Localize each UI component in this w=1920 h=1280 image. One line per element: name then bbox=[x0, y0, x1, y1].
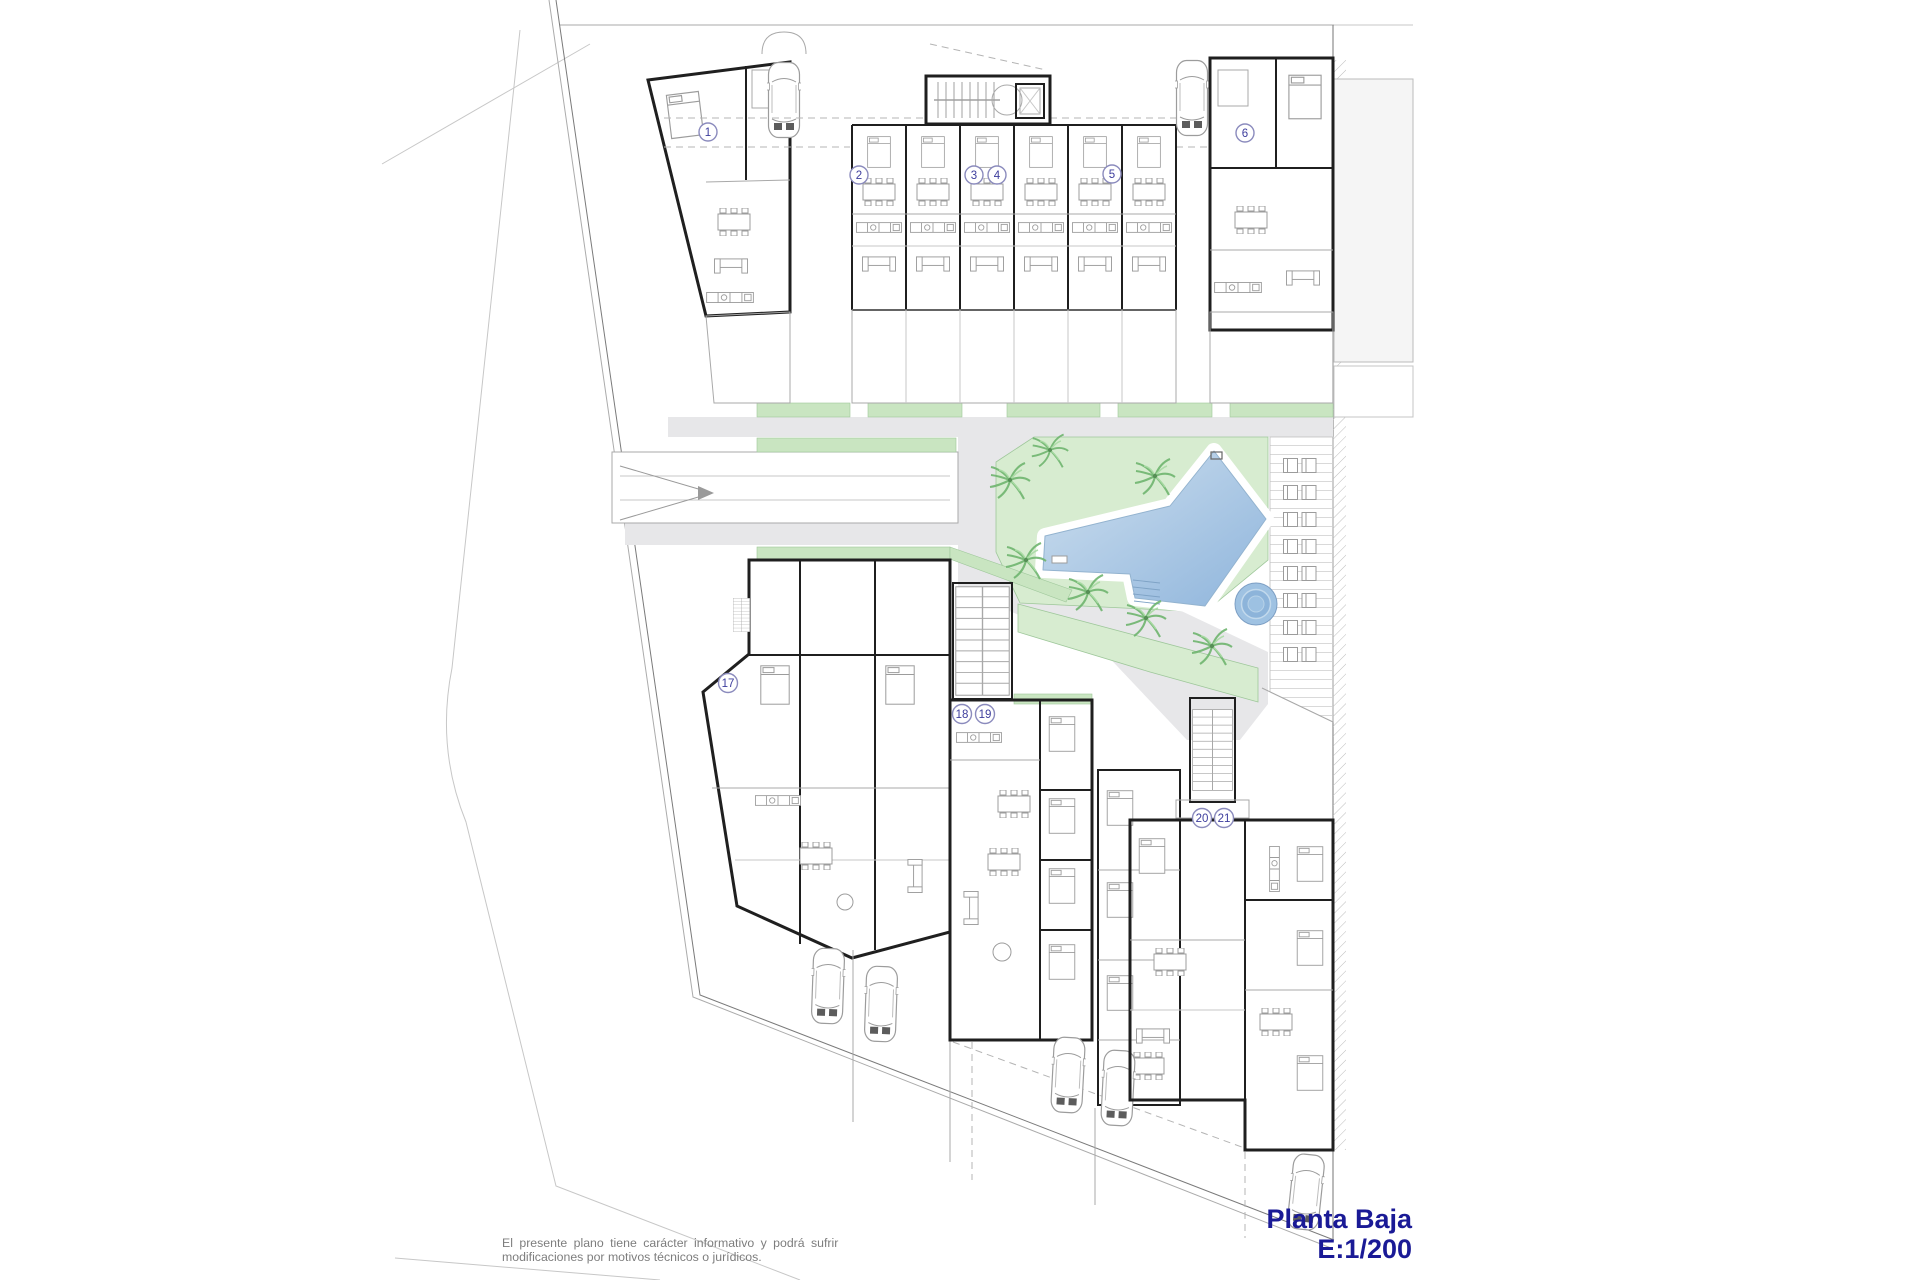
staircase-icon bbox=[934, 82, 1000, 118]
dining-table-icon bbox=[1154, 948, 1186, 976]
sofa-icon bbox=[964, 891, 978, 924]
unit-label-19: 19 bbox=[976, 705, 995, 724]
kitchen-icon bbox=[1270, 846, 1280, 891]
row-units bbox=[852, 125, 1176, 403]
unit-label-6: 6 bbox=[1236, 124, 1254, 142]
bed-icon bbox=[666, 91, 703, 138]
dining-table-icon bbox=[998, 790, 1030, 818]
bed-icon bbox=[1289, 75, 1321, 119]
terrace bbox=[706, 312, 790, 403]
kitchen-icon bbox=[956, 733, 1001, 743]
staircase-icon bbox=[733, 598, 750, 632]
neighbor-parcel bbox=[1334, 25, 1413, 417]
dining-table-icon bbox=[800, 842, 832, 870]
bed-icon bbox=[761, 666, 789, 704]
garden-bench-icon bbox=[1052, 556, 1067, 563]
car-icon bbox=[766, 63, 802, 138]
svg-text:20: 20 bbox=[1196, 813, 1209, 825]
staircase-icon bbox=[1193, 710, 1233, 791]
unit-label-3: 3 bbox=[965, 166, 983, 184]
top-units-block bbox=[648, 32, 1333, 403]
car-icon bbox=[809, 948, 848, 1024]
bed-icon bbox=[1049, 869, 1075, 904]
car-icon bbox=[1098, 1050, 1138, 1127]
coffee-table-icon bbox=[837, 894, 853, 910]
garage-door bbox=[762, 32, 806, 54]
bed-icon bbox=[1297, 931, 1323, 966]
bottom-left-block bbox=[703, 560, 950, 1162]
garage-ramp bbox=[612, 452, 958, 523]
car-icon bbox=[1174, 61, 1210, 136]
floor-plan-page: 1 2 3 4 5 6 17 18 19 20 21 Planta Baja E… bbox=[0, 0, 1920, 1280]
dining-table-icon bbox=[988, 848, 1020, 876]
kitchen-icon bbox=[1215, 282, 1262, 292]
spa-circle bbox=[1235, 583, 1277, 625]
stair-core bbox=[926, 44, 1050, 124]
bed-icon bbox=[1297, 847, 1323, 882]
unit-label-17: 17 bbox=[719, 674, 738, 693]
bottom-right-block bbox=[1130, 698, 1333, 1238]
svg-text:17: 17 bbox=[722, 678, 735, 690]
svg-text:4: 4 bbox=[994, 170, 1001, 182]
dining-table-icon bbox=[1235, 206, 1267, 234]
kitchen-icon bbox=[707, 292, 754, 302]
unit-label-2: 2 bbox=[850, 166, 868, 184]
kitchen-icon bbox=[755, 796, 800, 806]
page-title: Planta Baja bbox=[1266, 1204, 1413, 1234]
scale-label: E:1/200 bbox=[1317, 1234, 1412, 1264]
bed-icon bbox=[1049, 945, 1075, 980]
svg-text:3: 3 bbox=[971, 170, 977, 182]
disclaimer-line-1: El presente plano tiene carácter informa… bbox=[502, 1236, 838, 1250]
unit-label-5: 5 bbox=[1103, 165, 1121, 183]
svg-text:1: 1 bbox=[705, 127, 711, 139]
bed-icon bbox=[1297, 1056, 1323, 1091]
svg-text:19: 19 bbox=[979, 709, 992, 721]
svg-text:21: 21 bbox=[1218, 813, 1231, 825]
svg-text:6: 6 bbox=[1242, 128, 1248, 140]
sun-deck bbox=[1262, 437, 1333, 722]
bed-icon bbox=[1049, 799, 1075, 834]
unit-label-1: 1 bbox=[699, 123, 717, 141]
unit-label-18: 18 bbox=[953, 705, 972, 724]
coffee-table-icon bbox=[993, 943, 1011, 961]
svg-text:2: 2 bbox=[856, 170, 862, 182]
svg-text:18: 18 bbox=[956, 709, 969, 721]
sofa-icon bbox=[1136, 1029, 1169, 1043]
unit-label-20: 20 bbox=[1193, 809, 1212, 828]
sofa-icon bbox=[1286, 271, 1319, 285]
dining-table-icon bbox=[718, 208, 750, 236]
bed-icon bbox=[886, 666, 914, 704]
bed-icon bbox=[1139, 839, 1165, 874]
unit-label-21: 21 bbox=[1215, 809, 1234, 828]
unit-label-4: 4 bbox=[988, 166, 1006, 184]
car-icon bbox=[1048, 1037, 1088, 1114]
floor-plan-canvas: 1 2 3 4 5 6 17 18 19 20 21 Planta Baja E… bbox=[0, 0, 1920, 1280]
dining-table-icon bbox=[1132, 1052, 1164, 1080]
dining-table-icon bbox=[1260, 1008, 1292, 1036]
unit-6 bbox=[1210, 58, 1333, 403]
car-icon bbox=[862, 966, 901, 1042]
sofa-icon bbox=[714, 259, 747, 273]
staircase-icon bbox=[956, 587, 1009, 695]
terrace bbox=[1210, 312, 1333, 403]
bed-icon bbox=[1049, 717, 1075, 752]
disclaimer-line-2: modificaciones por motivos técnicos o ju… bbox=[502, 1250, 762, 1264]
sofa-icon bbox=[908, 859, 922, 892]
svg-text:5: 5 bbox=[1109, 169, 1115, 181]
elevator-icon bbox=[1016, 84, 1044, 118]
